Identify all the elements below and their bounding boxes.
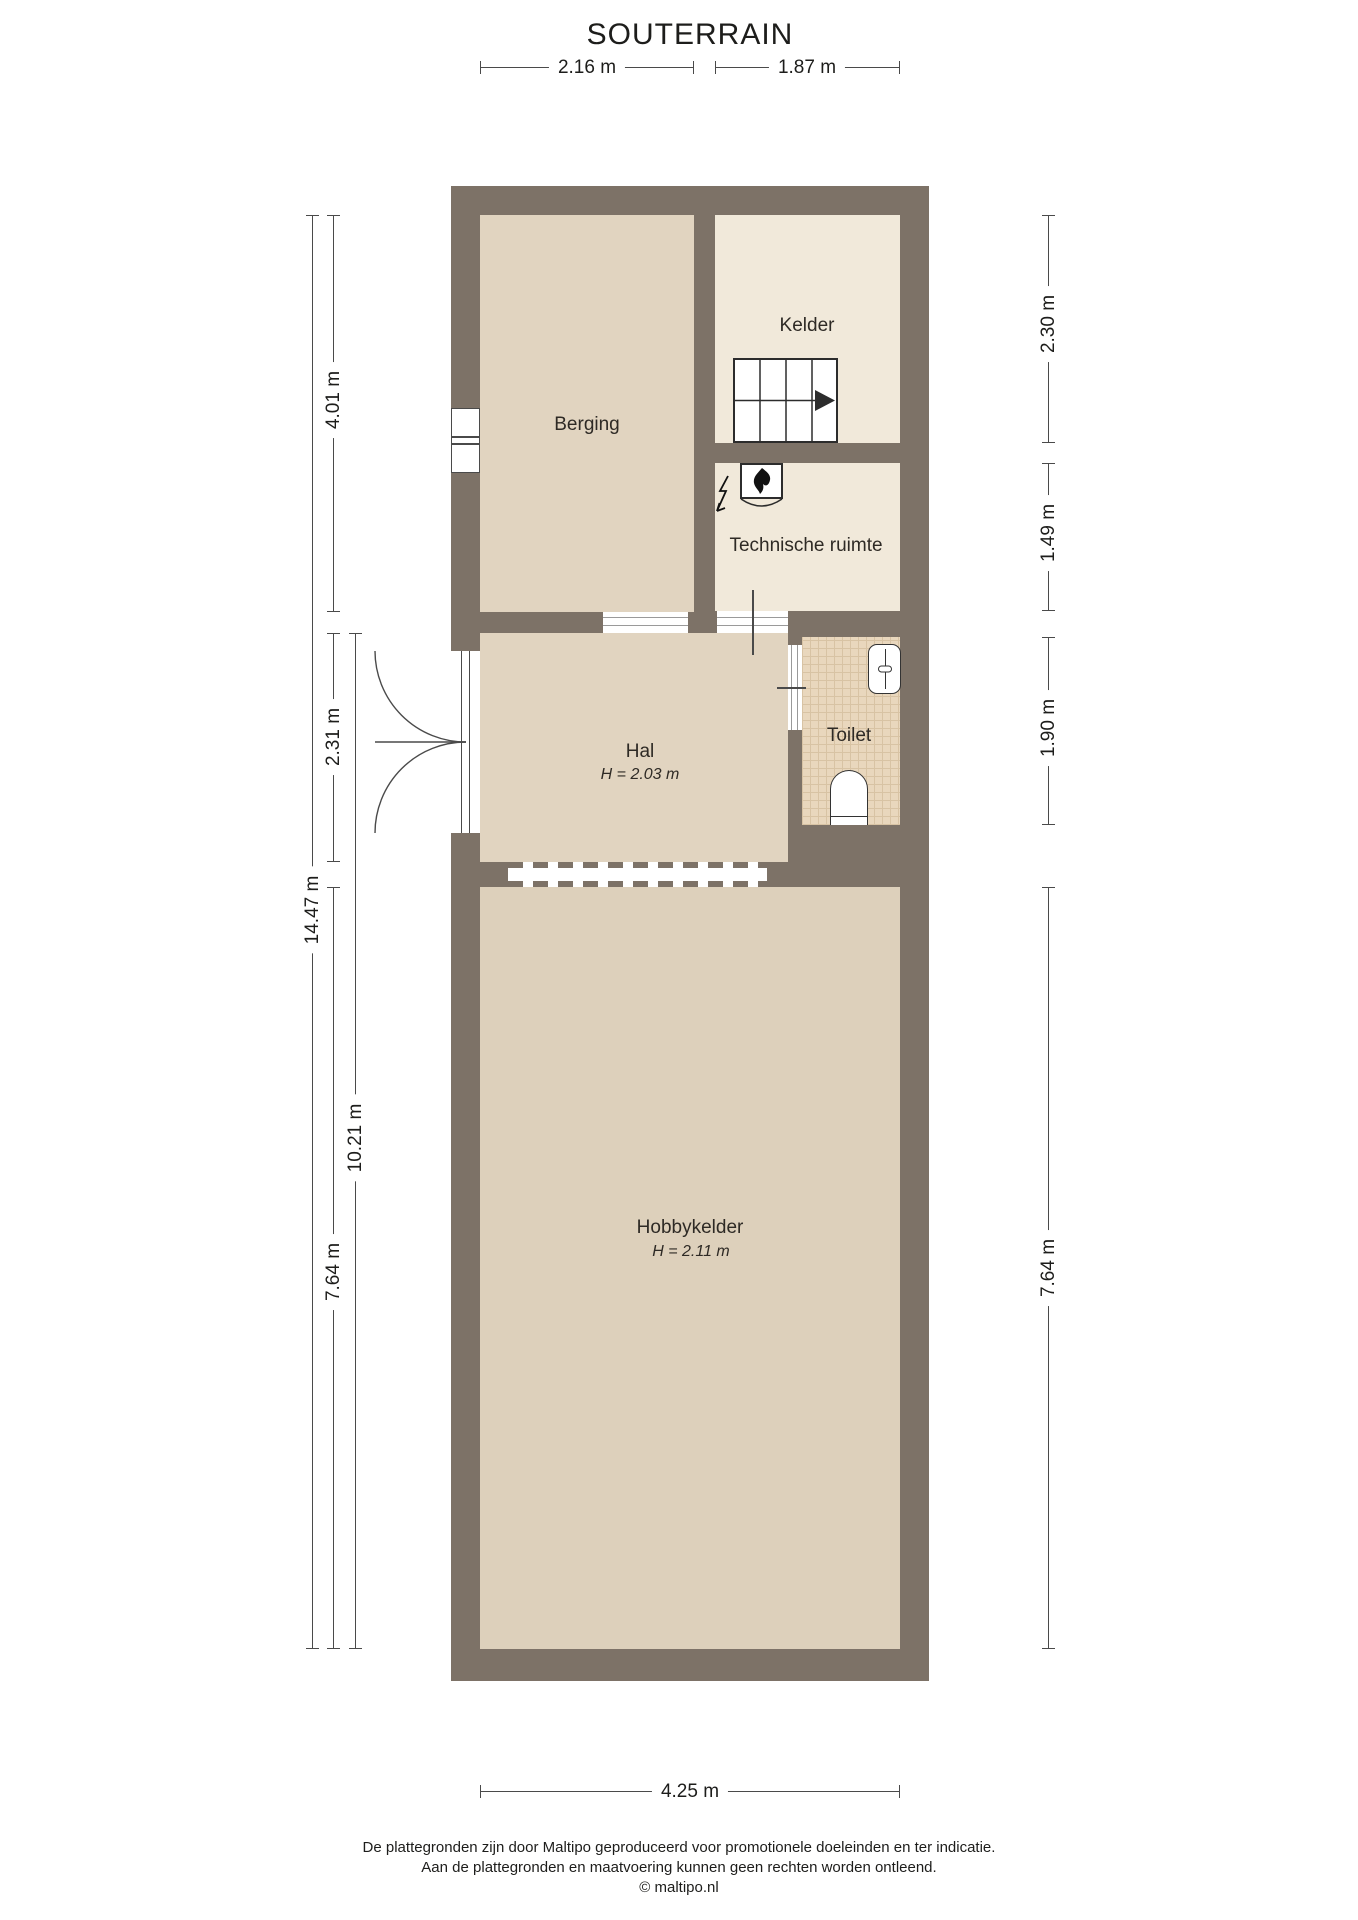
- room-height-hobbykelder: H = 2.11 m: [652, 1243, 730, 1261]
- footer-line-1: De plattegronden zijn door Maltipo gepro…: [363, 1838, 996, 1858]
- dim-tick: [1042, 610, 1055, 611]
- sink-icon: [868, 644, 901, 694]
- dim-tick: [349, 633, 362, 634]
- dim-tick: [306, 1648, 319, 1649]
- tech-room-door-leaf: [752, 590, 754, 655]
- footer-line-2: Aan de plattegronden en maatvoering kunn…: [363, 1858, 996, 1878]
- dim-tick: [306, 215, 319, 216]
- dim-label: 10.21 m: [345, 1095, 367, 1182]
- dim-tick: [327, 887, 340, 888]
- berging-door-opening: [603, 612, 688, 633]
- dim-label: 1.49 m: [1038, 495, 1060, 571]
- dim-label: 7.64 m: [1038, 1230, 1060, 1306]
- dim-label: 1.87 m: [769, 57, 845, 79]
- dim-tick: [327, 1648, 340, 1649]
- dim-label: 14.47 m: [302, 867, 324, 954]
- dim-label: 4.25 m: [652, 1781, 728, 1803]
- entry-door-swing-icon: [360, 651, 467, 833]
- dim-tick: [327, 215, 340, 216]
- dim-tick: [899, 1785, 900, 1798]
- dim-label: 1.90 m: [1038, 690, 1060, 766]
- dim-label: 4.01 m: [323, 362, 345, 438]
- room-label-berging: Berging: [554, 414, 620, 436]
- dim-tick: [327, 611, 340, 612]
- footer-disclaimer: De plattegronden zijn door Maltipo gepro…: [363, 1838, 996, 1898]
- page-title: SOUTERRAIN: [587, 18, 794, 52]
- dim-tick: [1042, 824, 1055, 825]
- dim-tick: [349, 1648, 362, 1649]
- dim-label: 2.16 m: [549, 57, 625, 79]
- dim-tick: [1042, 463, 1055, 464]
- footer-line-3: © maltipo.nl: [363, 1878, 996, 1898]
- dim-tick: [480, 1785, 481, 1798]
- dim-tick: [715, 61, 716, 74]
- room-label-kelder: Kelder: [780, 315, 835, 337]
- dim-tick: [1042, 887, 1055, 888]
- hal-hobby-opening: [508, 862, 767, 887]
- dim-label: 2.31 m: [323, 699, 345, 775]
- room-label-technische-ruimte: Technische ruimte: [729, 535, 882, 557]
- dim-tick: [327, 633, 340, 634]
- room-label-toilet: Toilet: [827, 725, 871, 747]
- dim-tick: [480, 61, 481, 74]
- window-icon: [451, 408, 480, 473]
- dim-tick: [693, 61, 694, 74]
- toilet-door-leaf: [777, 687, 806, 689]
- dim-tick: [1042, 215, 1055, 216]
- floorplan: Berging Kelder Technische ruimte Hal H =…: [451, 186, 929, 1681]
- dim-label: 2.30 m: [1038, 286, 1060, 362]
- room-label-hobbykelder: Hobbykelder: [637, 1217, 744, 1239]
- dim-tick: [899, 61, 900, 74]
- boiler-icon: [740, 463, 783, 510]
- room-height-hal: H = 2.03 m: [601, 766, 680, 784]
- dim-tick: [327, 861, 340, 862]
- dim-tick: [1042, 1648, 1055, 1649]
- dim-label: 7.64 m: [323, 1234, 345, 1310]
- dim-tick: [1042, 442, 1055, 443]
- room-hobbykelder: [480, 887, 900, 1649]
- room-label-hal: Hal: [626, 741, 655, 763]
- toilet-bowl-icon: [830, 770, 868, 825]
- dim-tick: [1042, 637, 1055, 638]
- electric-bolt-icon: [714, 475, 736, 517]
- stairs-icon: [733, 358, 838, 443]
